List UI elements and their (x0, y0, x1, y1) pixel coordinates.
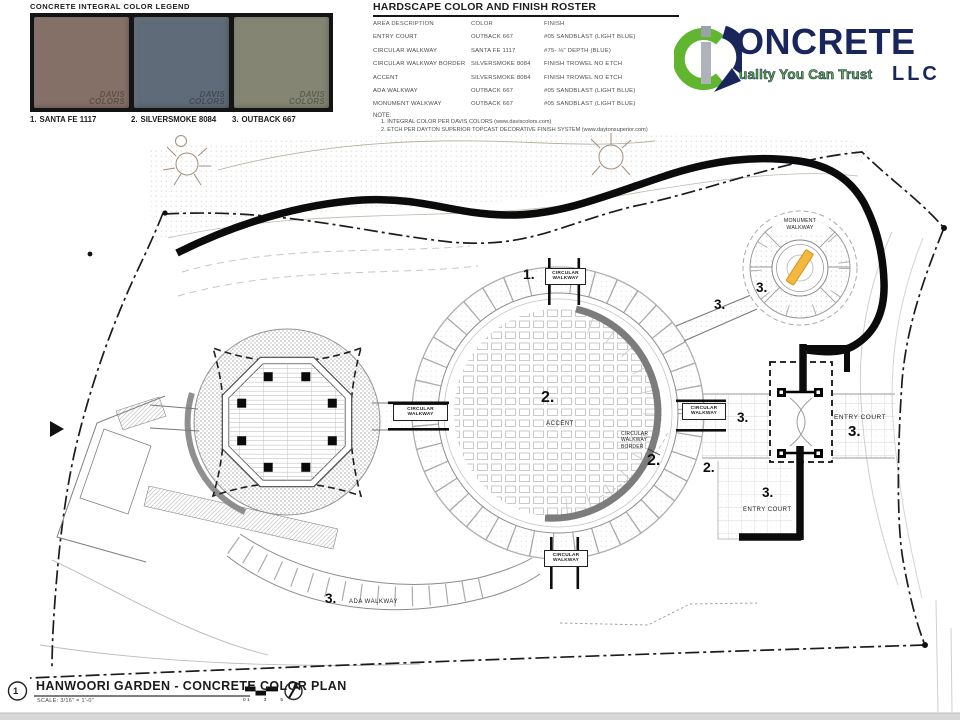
roster-cell: #05 SANDBLAST (LIGHT BLUE) (544, 34, 679, 40)
legend-title: CONCRETE INTEGRAL COLOR LEGEND (30, 2, 190, 11)
davis-colors-watermark: DAVISCOLORS (289, 91, 325, 105)
roster-cell: #05 SANDBLAST (LIGHT BLUE) (544, 88, 679, 94)
marker-3-entry-west: 3. (737, 410, 748, 425)
legend-labels: 1.SANTA FE 1117 2.SILVERSMOKE 8084 3.OUT… (30, 115, 333, 124)
label-circular-walkway-border: CIRCULARWALKWAYBORDER (621, 431, 648, 450)
label-circular-walkway-bottom: CIRCULARWALKWAY (544, 550, 588, 567)
drawing-scale: SCALE: 3/16" = 1'-0" (37, 698, 94, 704)
iq-logo-mark (674, 20, 742, 96)
roster-cell: ENTRY COURT (373, 34, 471, 40)
scale-bar-labels: 0 135 (243, 698, 283, 703)
davis-colors-watermark: DAVISCOLORS (89, 91, 125, 105)
drawing-title: HANWOORI GARDEN - CONCRETE COLOR PLAN (36, 679, 347, 693)
plan-sheet: CONCRETE INTEGRAL COLOR LEGEND DAVISCOLO… (0, 0, 960, 720)
roster-cell: SANTA FE 1117 (471, 48, 544, 54)
roster-cell: ACCENT (373, 75, 471, 81)
swatch-label: 1.SANTA FE 1117 (30, 115, 131, 124)
swatch-label: 2.SILVERSMOKE 8084 (131, 115, 232, 124)
roster-cell: ADA WALKWAY (373, 88, 471, 94)
col-header: FINISH (544, 21, 679, 27)
label-entry-court-east: ENTRY COURT (834, 414, 886, 421)
marker-3-entry-south: 3. (762, 485, 773, 500)
col-header: AREA DESCRIPTION (373, 21, 471, 27)
logo-suffix: LLC (892, 63, 940, 86)
label-ada-walkway: ADA WALKWAY (349, 599, 398, 605)
marker-3-ada: 3. (325, 591, 336, 606)
roster-cell: #05 SANDBLAST (LIGHT BLUE) (544, 101, 679, 107)
label-monument-walkway: MONUMENTWALKWAY (769, 218, 831, 232)
marker-2-border: 2. (647, 452, 660, 470)
col-header: COLOR (471, 21, 544, 27)
label-circular-walkway-left: CIRCULARWALKWAY (393, 404, 448, 421)
roster-notes: NOTE: 1. INTEGRAL COLOR PER DAVIS COLORS… (373, 113, 679, 134)
note-item: 1. INTEGRAL COLOR PER DAVIS COLORS (www.… (381, 119, 679, 126)
marker-3-entry-east: 3. (848, 423, 861, 440)
roster-table: AREA DESCRIPTION COLOR FINISH ENTRY COUR… (373, 21, 679, 107)
label-entry-court-south: ENTRY COURT (743, 507, 792, 513)
swatch-santa-fe: DAVISCOLORS (34, 17, 129, 108)
label-circular-walkway-top: CIRCULARWALKWAY (545, 268, 586, 285)
logo-wordmark: ONCRETE (736, 21, 916, 63)
roster-cell: OUTBACK 667 (471, 34, 544, 40)
roster-cell: CIRCULAR WALKWAY BORDER (373, 61, 471, 67)
pavilion (150, 329, 432, 515)
note-item: 2. ETCH PER DAYTON SUPERIOR TOPCAST DECO… (381, 127, 679, 134)
color-legend: DAVISCOLORS DAVISCOLORS DAVISCOLORS (30, 13, 333, 112)
roster-cell: OUTBACK 667 (471, 88, 544, 94)
marker-3-monument: 3. (756, 280, 767, 295)
swatch-outback: DAVISCOLORS (234, 17, 329, 108)
roster-cell: MONUMENT WALKWAY (373, 101, 471, 107)
swatch-silversmoke: DAVISCOLORS (134, 17, 229, 108)
detail-number: 1 (13, 686, 18, 697)
marker-2: 2. (703, 459, 715, 475)
roster-title: HARDSCAPE COLOR AND FINISH ROSTER (373, 1, 679, 17)
roster-cell: FINISH TROWEL NO ETCH (544, 75, 679, 81)
logo-tagline: uality You Can Trust (739, 67, 872, 82)
swatch-label: 3.OUTBACK 667 (232, 115, 333, 124)
roster-cell: #75- ⅛" DEPTH (BLUE) (544, 48, 679, 54)
company-logo: ONCRETE uality You Can Trust LLC (674, 20, 914, 98)
hardscape-roster: HARDSCAPE COLOR AND FINISH ROSTER AREA D… (373, 1, 679, 134)
marker-3-connector: 3. (714, 297, 725, 312)
label-circular-walkway-right: CIRCULARWALKWAY (682, 403, 726, 420)
roster-cell: CIRCULAR WALKWAY (373, 48, 471, 54)
roster-cell: FINISH TROWEL NO ETCH (544, 61, 679, 67)
label-accent: ACCENT (538, 421, 582, 427)
roster-cell: SILVERSMOKE 8084 (471, 61, 544, 67)
davis-colors-watermark: DAVISCOLORS (189, 91, 225, 105)
marker-1-circular-walkway: 1. (523, 266, 535, 282)
roster-cell: OUTBACK 667 (471, 101, 544, 107)
marker-2-accent: 2. (541, 389, 554, 407)
roster-cell: SILVERSMOKE 8084 (471, 75, 544, 81)
circular-plaza (412, 267, 704, 559)
